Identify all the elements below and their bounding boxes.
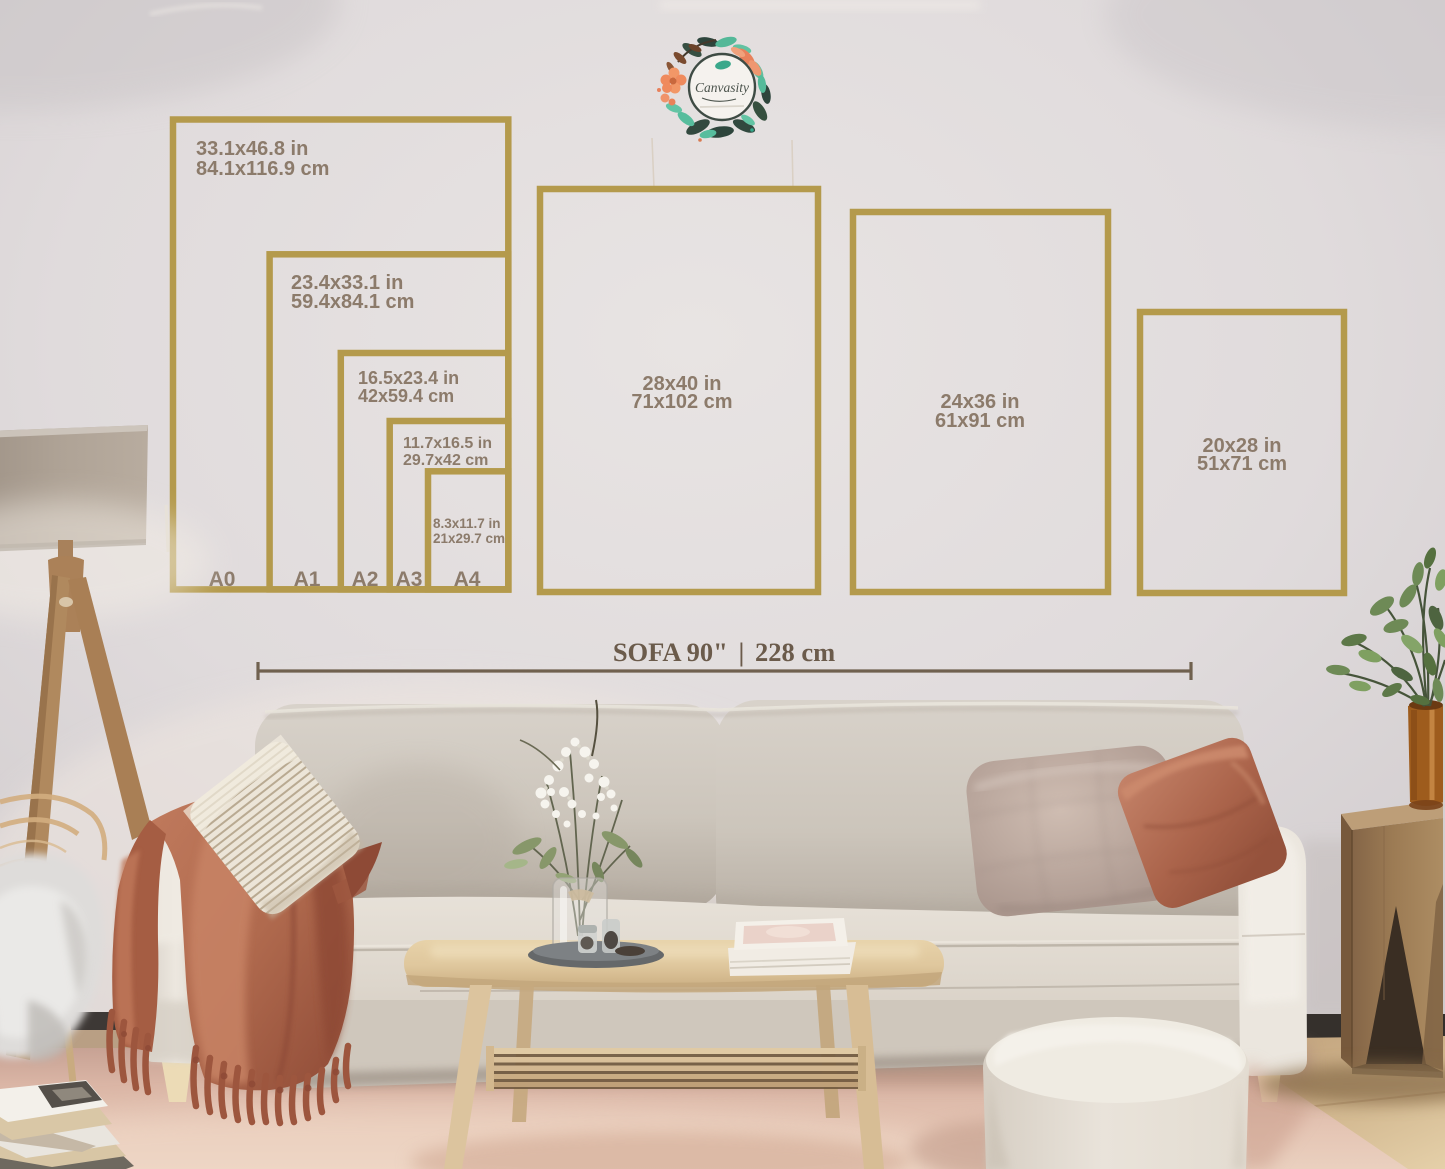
svg-text:A2: A2 bbox=[352, 568, 379, 591]
svg-text:33.1x46.8 in: 33.1x46.8 in bbox=[196, 138, 308, 160]
svg-text:59.4x84.1 cm: 59.4x84.1 cm bbox=[291, 291, 414, 313]
svg-text:21x29.7 cm: 21x29.7 cm bbox=[433, 531, 505, 546]
svg-text:16.5x23.4 in: 16.5x23.4 in bbox=[358, 368, 459, 388]
svg-text:84.1x116.9 cm: 84.1x116.9 cm bbox=[196, 158, 329, 180]
svg-text:A4: A4 bbox=[454, 568, 481, 591]
svg-text:51x71 cm: 51x71 cm bbox=[1197, 453, 1287, 475]
svg-text:A3: A3 bbox=[396, 568, 423, 591]
svg-text:8.3x11.7 in: 8.3x11.7 in bbox=[433, 516, 501, 531]
svg-text:42x59.4 cm: 42x59.4 cm bbox=[358, 386, 454, 406]
svg-text:29.7x42 cm: 29.7x42 cm bbox=[403, 452, 488, 469]
svg-text:71x102 cm: 71x102 cm bbox=[631, 391, 732, 413]
svg-text:61x91 cm: 61x91 cm bbox=[935, 410, 1025, 432]
svg-text:A0: A0 bbox=[209, 568, 236, 591]
svg-text:SOFA 90" | 228 cm: SOFA 90" | 228 cm bbox=[613, 637, 835, 667]
svg-text:Canvasity: Canvasity bbox=[695, 80, 749, 95]
svg-text:A1: A1 bbox=[294, 568, 321, 591]
svg-text:11.7x16.5 in: 11.7x16.5 in bbox=[403, 435, 492, 452]
